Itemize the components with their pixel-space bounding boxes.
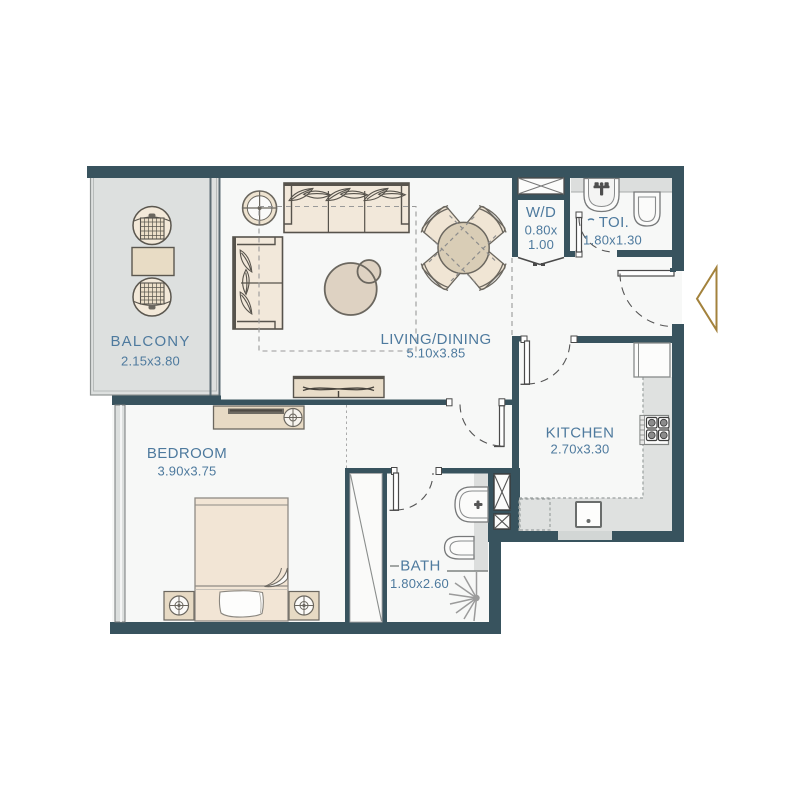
svg-text:0.80x: 0.80x <box>525 223 558 238</box>
svg-text:1.80x1.30: 1.80x1.30 <box>583 233 642 248</box>
svg-text:BEDROOM: BEDROOM <box>147 445 227 462</box>
svg-text:KITCHEN: KITCHEN <box>546 425 615 442</box>
svg-text:3.90x3.75: 3.90x3.75 <box>158 464 217 479</box>
svg-text:1.80x2.60: 1.80x2.60 <box>390 576 449 591</box>
svg-text:W/D: W/D <box>526 204 556 221</box>
svg-text:TOI.: TOI. <box>599 214 630 231</box>
svg-text:5.10x3.85: 5.10x3.85 <box>407 346 466 361</box>
svg-text:BALCONY: BALCONY <box>110 333 190 350</box>
svg-text:2.70x3.30: 2.70x3.30 <box>551 442 610 457</box>
svg-text:2.15x3.80: 2.15x3.80 <box>121 354 180 369</box>
svg-text:BATH: BATH <box>400 558 441 575</box>
svg-text:1.00: 1.00 <box>528 237 554 252</box>
